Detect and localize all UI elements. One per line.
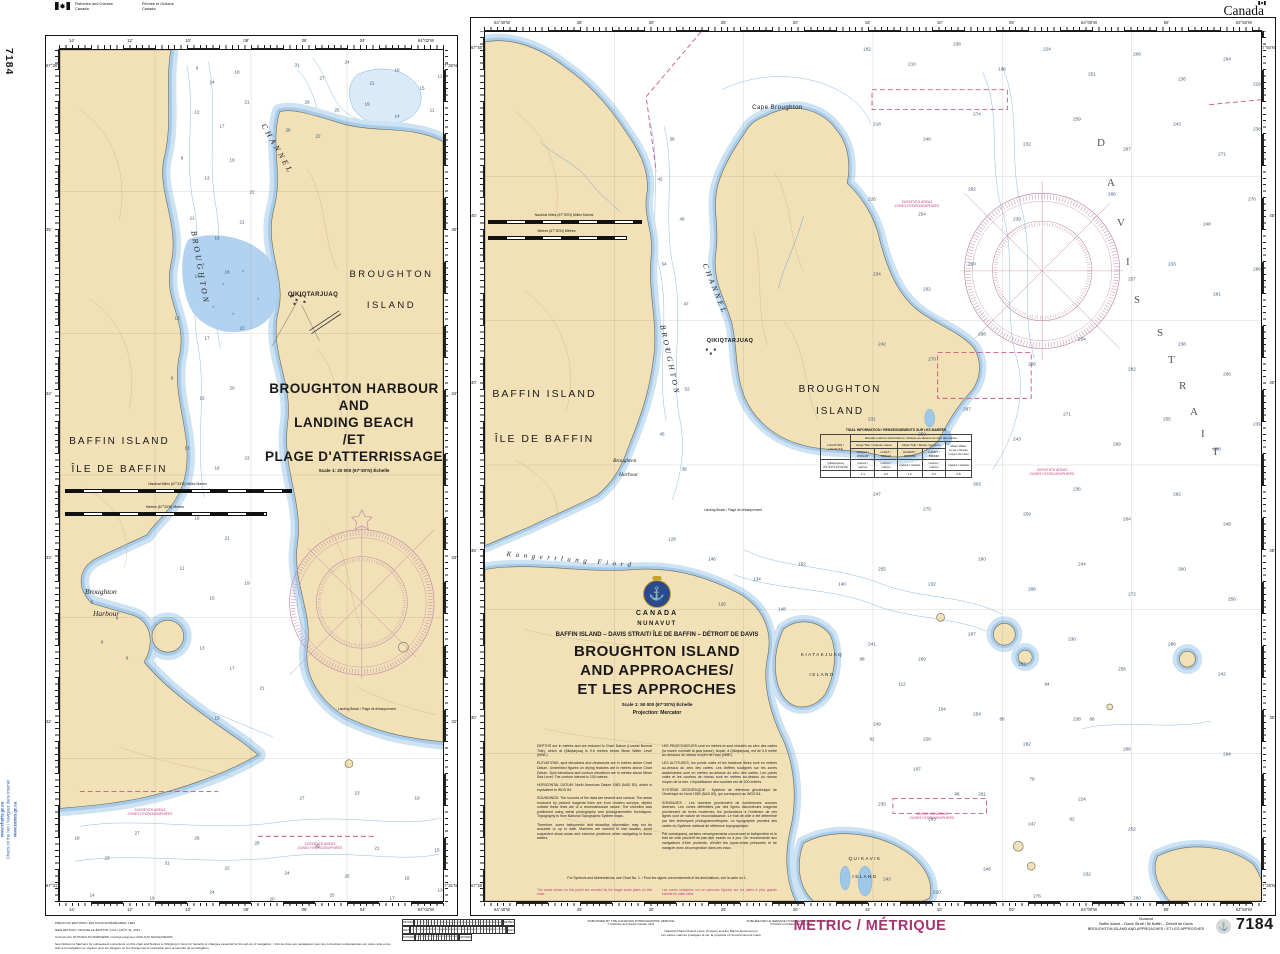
canada-flag-icon — [55, 2, 70, 10]
right-magenta-notes-layer: SURVEYED AREASZONES HYDROGRAPHIÉESSURVEY… — [485, 32, 1261, 901]
left-panel-latitude-labels-right: 67°36'N35'34'33'32'67°31'N — [448, 49, 457, 902]
graduation-label: 40' — [1269, 380, 1275, 385]
graduation-label: 67°25'N — [1260, 883, 1275, 888]
graduation-band — [444, 49, 446, 902]
unit-conversion-scale: METRES1234567891011121314151617181920212… — [402, 919, 468, 942]
graduation-label: 35' — [46, 227, 55, 232]
graduation-label: 35' — [451, 227, 457, 232]
government-of-canada-signature: Fisheries and OceansCanada Pêches et Océ… — [55, 2, 174, 12]
graduation-label: 10' — [185, 38, 191, 45]
graduation-label: 34' — [46, 391, 55, 396]
graduation-label: 64°40'W — [494, 20, 510, 27]
charts-web-links: www.charts.gc.ca Charts on the Net / Nav… — [0, 734, 18, 904]
conversion-fathoms: 12345678910111213141516 — [415, 934, 459, 941]
left-chart-panel: 14'12'10'08'06'04'64°02'W 14'12'10'08'06… — [45, 35, 458, 916]
left-magenta-notes-layer: SURVEYED AREASZONES HYDROGRAPHIÉESSURVEY… — [60, 50, 443, 901]
survey-limit-note: SURVEYED AREASZONES HYDROGRAPHIÉES — [895, 200, 940, 209]
conversion-row: FEET371013162023263033363943464952565962… — [402, 926, 468, 933]
chart-id-block: Nunavut Baffin Island – Davis Strait / Î… — [1080, 917, 1212, 932]
graduation-label: 15' — [865, 907, 871, 914]
conversion-row: METRES1234567891011121314151617181920212… — [402, 919, 468, 926]
left-panel-longitude-labels-top: 14'12'10'08'06'04'64°02'W — [59, 38, 444, 45]
conversion-metres: 1234567891011121314151617181920212223242… — [414, 919, 503, 926]
graduation-label: 30' — [1269, 715, 1275, 720]
graduation-ticks — [480, 31, 484, 902]
graduation-label: 64°00'W — [1081, 20, 1097, 27]
graduation-label: 35' — [577, 907, 583, 914]
graduation-label: 67°36'N — [442, 63, 457, 68]
right-chart-panel: 64°40'W35'30'25'20'15'10'05'64°00'W55'63… — [470, 17, 1276, 916]
survey-limit-note: SURVEYED AREASZONES HYDROGRAPHIÉES — [128, 808, 173, 817]
published-en: PUBLISHED BY THE CANADIAN HYDROGRAPHIC S… — [556, 919, 706, 927]
graduation-label: 06' — [302, 907, 308, 914]
graduation-label: 33' — [46, 555, 55, 560]
graduation-label: 67°36'N — [46, 63, 55, 68]
graduation-ticks — [59, 45, 444, 49]
graduation-band — [59, 902, 444, 904]
graduation-label: 35' — [1269, 548, 1275, 553]
left-panel-latitude-labels-left: 67°36'N35'34'33'32'67°31'N — [46, 49, 55, 902]
graduation-label: 12' — [127, 907, 133, 914]
fip-french: Pêches et OcéansCanada — [142, 2, 174, 12]
graduation-ticks — [484, 27, 1262, 31]
graduation-label: 04' — [360, 907, 366, 914]
chart-number-vertical: 7184 — [3, 48, 15, 75]
note-paragraph: See Notices to Mariners for subsequent c… — [55, 942, 395, 950]
charts-url-fr: www.cartes.gc.ca — [12, 734, 18, 904]
chart-number: 7184 — [1236, 916, 1274, 934]
graduation-band — [1262, 31, 1264, 902]
graduation-label: 08' — [243, 38, 249, 45]
wordmark-flag-icon — [1258, 1, 1266, 5]
graduation-label: 32' — [46, 719, 55, 724]
graduation-label: 10' — [185, 907, 191, 914]
graduation-label: 67°50'N — [471, 45, 480, 50]
edition-notes: PREVIOUS EDITIONS / ÉDITIONS ANTÉRIEURES… — [55, 918, 395, 954]
graduation-ticks — [484, 903, 1262, 907]
graduation-label: 15' — [865, 20, 871, 27]
graduation-label: 30' — [649, 907, 655, 914]
graduation-label: 10' — [937, 907, 943, 914]
graduation-label: 34' — [451, 391, 457, 396]
right-panel-longitude-labels-top: 64°40'W35'30'25'20'15'10'05'64°00'W55'63… — [484, 20, 1262, 27]
graduation-label: 25' — [721, 20, 727, 27]
note-paragraph: PREVIOUS EDITIONS / ÉDITIONS ANTÉRIEURES… — [55, 921, 395, 925]
graduation-label: 10' — [937, 20, 943, 27]
graduation-label: 67°31'N — [46, 883, 55, 888]
graduation-label: 64°40'W — [494, 907, 510, 914]
graduation-label: 20' — [793, 907, 799, 914]
right-chart-area: Cape Broughton BROUGHTON CHANNEL QIKIQTA… — [484, 31, 1262, 902]
graduation-label: 05' — [1009, 20, 1015, 27]
graduation-label: 08' — [243, 907, 249, 914]
graduation-band — [484, 902, 1262, 904]
graduation-label: 30' — [649, 20, 655, 27]
graduation-label: 06' — [302, 38, 308, 45]
graduation-label: 64°02'W — [418, 38, 434, 45]
graduation-label: 67°25'N — [471, 883, 480, 888]
note-paragraph: NEW EDITION / NOUVELLE ÉDITION: AUG / AO… — [55, 928, 395, 932]
graduation-label: 14' — [69, 38, 75, 45]
graduation-label: 45' — [471, 213, 480, 218]
graduation-label: 05' — [1009, 907, 1015, 914]
graduation-label: 33' — [451, 555, 457, 560]
conversion-feet: FEET — [402, 926, 410, 933]
graduation-label: 40' — [471, 380, 480, 385]
survey-limit-note: SURVEYED AREASZONES HYDROGRAPHIÉES — [298, 842, 343, 851]
fip-english: Fisheries and OceansCanada — [75, 2, 113, 12]
right-panel-longitude-labels-bottom: 64°40'W35'30'25'20'15'10'05'64°00'W55'63… — [484, 907, 1262, 914]
conversion-fathoms: FATHOMS — [402, 934, 415, 941]
graduation-label: 04' — [360, 38, 366, 45]
graduation-label: 14' — [69, 907, 75, 914]
metric-banner: METRIC / MÉTRIQUE — [790, 918, 950, 934]
left-panel-longitude-labels-bottom: 14'12'10'08'06'04'64°02'W — [59, 907, 444, 914]
graduation-ticks — [59, 903, 444, 907]
graduation-label: 63°50'W — [1236, 907, 1252, 914]
note-paragraph: Corrected to NOTICES TO MARINERS / Corri… — [55, 935, 395, 939]
graduation-label: 63°50'W — [1236, 20, 1252, 27]
conversion-row: FATHOMS12345678910111213141516FATHOMS — [402, 934, 468, 941]
graduation-label: 45' — [1269, 213, 1275, 218]
graduation-label: 67°31'N — [442, 883, 457, 888]
graduation-label: 32' — [451, 719, 457, 724]
survey-limit-note: SURVEYED AREASZONES HYDROGRAPHIÉES — [1030, 468, 1075, 477]
survey-limit-note: SURVEYED AREASZONES HYDROGRAPHIÉES — [910, 812, 955, 821]
right-panel-latitude-labels-left: 67°50'N45'40'35'30'67°25'N — [471, 31, 480, 902]
left-chart-area: BROUGHTON CHANNEL QIKIQTARJUAQ BROUGHTON… — [59, 49, 444, 902]
conversion-feet: FEET — [507, 926, 515, 933]
conversion-feet: 3710131620232630333639434649525659626669… — [410, 926, 507, 933]
graduation-label: 30' — [471, 715, 480, 720]
id-title: BROUGHTON ISLAND AND APPROACHES / ET LES… — [1080, 927, 1212, 932]
graduation-label: 20' — [793, 20, 799, 27]
graduation-label: 35' — [577, 20, 583, 27]
graduation-label: 67°50'N — [1260, 45, 1275, 50]
graduation-label: 55' — [1164, 907, 1170, 914]
right-panel-latitude-labels-right: 67°50'N45'40'35'30'67°25'N — [1266, 31, 1275, 902]
graduation-label: 35' — [471, 548, 480, 553]
graduation-ticks — [55, 49, 59, 902]
conversion-metres: METRES — [503, 919, 515, 926]
graduation-label: 64°02'W — [418, 907, 434, 914]
conversion-fathoms: FATHOMS — [459, 934, 472, 941]
graduation-label: 55' — [1164, 20, 1170, 27]
graduation-label: 25' — [721, 907, 727, 914]
graduation-label: 12' — [127, 38, 133, 45]
graduation-label: 64°00'W — [1081, 907, 1097, 914]
chs-crest-small-icon: ⚓ — [1216, 919, 1231, 934]
conversion-metres: METRES — [402, 919, 414, 926]
